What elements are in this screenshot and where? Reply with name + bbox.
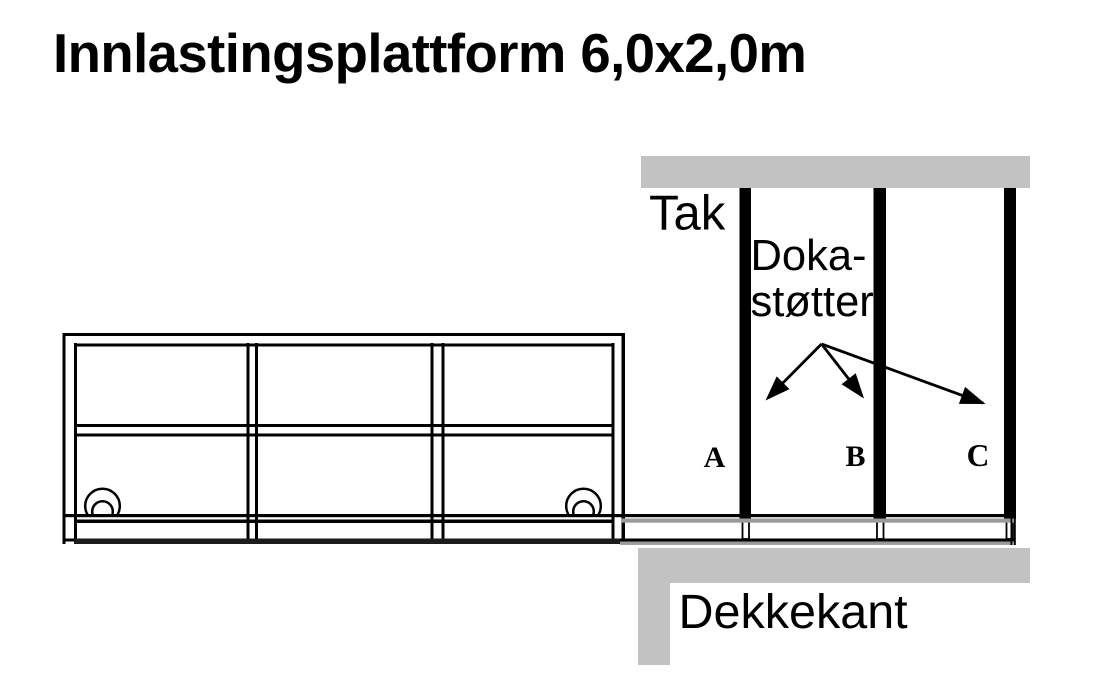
svg-text:Dekkekant: Dekkekant bbox=[679, 585, 909, 639]
svg-text:Doka-: Doka- bbox=[751, 232, 867, 280]
svg-text:A: A bbox=[704, 441, 726, 474]
svg-text:C: C bbox=[967, 438, 990, 473]
svg-text:støtter: støtter bbox=[751, 278, 874, 326]
svg-text:B: B bbox=[845, 440, 865, 473]
svg-text:Tak: Tak bbox=[649, 187, 726, 241]
